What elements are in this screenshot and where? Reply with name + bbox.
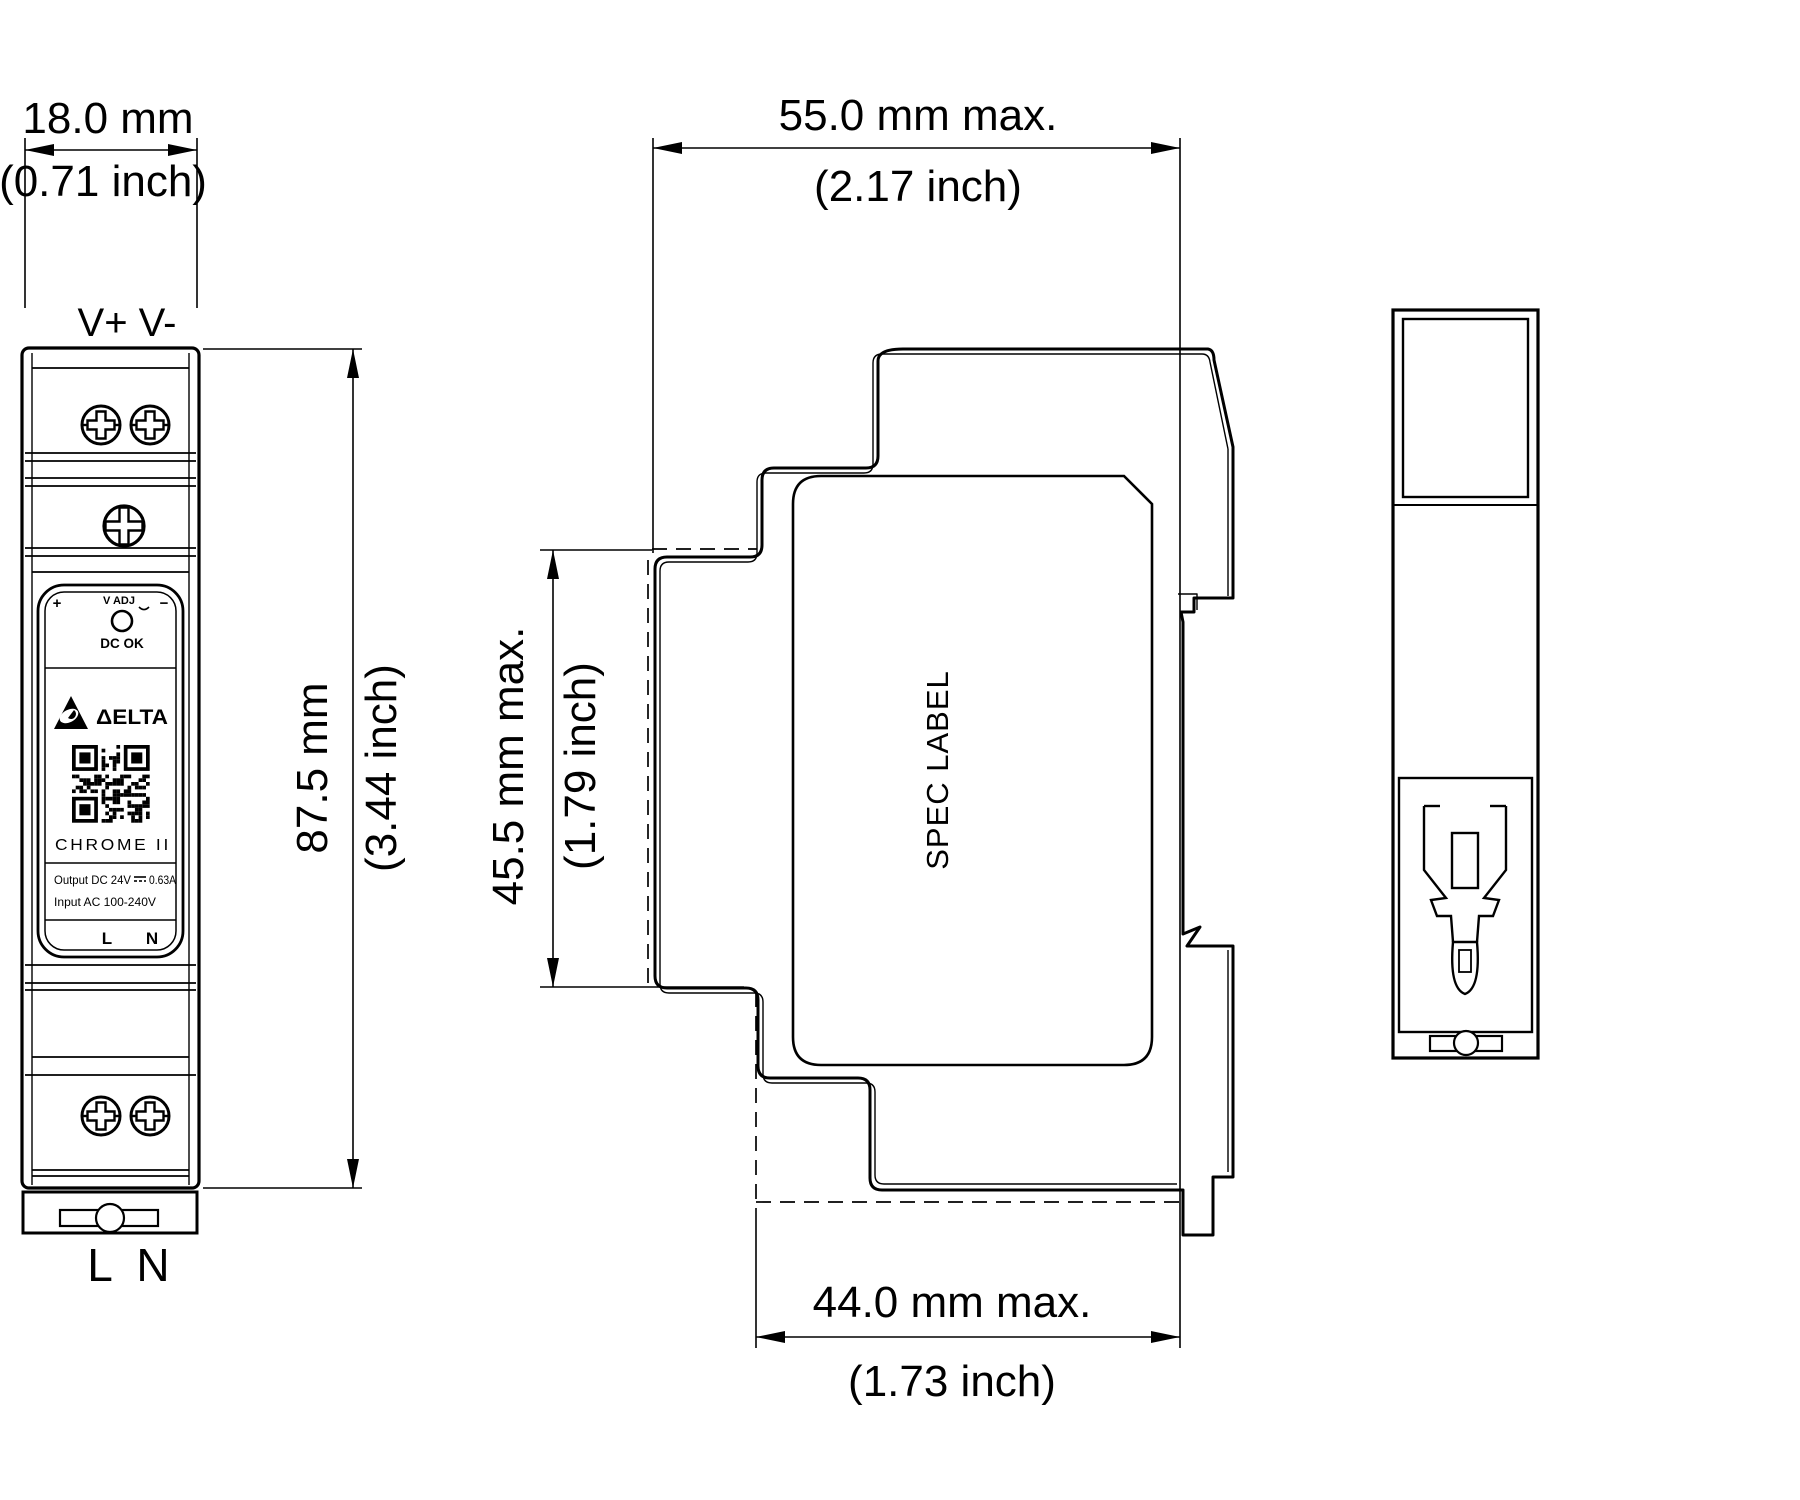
clip-spring-left xyxy=(1424,806,1453,942)
v-adj-arrow-icon xyxy=(139,607,149,610)
front-section-lines xyxy=(25,368,196,1176)
product-label-panel: + V ADJ − DC OK ΔELTA CHROME II Output D… xyxy=(38,585,183,957)
model-text: CHROME II xyxy=(55,837,171,854)
arrowhead-down-icon xyxy=(347,1159,359,1188)
plus-marking: + xyxy=(53,595,62,612)
rear-din-clip xyxy=(1399,778,1532,1032)
dc-symbol-icon xyxy=(134,877,146,881)
brand-text: ΔELTA xyxy=(96,706,168,729)
arrowhead-down-icon xyxy=(547,958,559,987)
front-view: 18.0 mm (0.71 inch) V+ V- + V ADJ − DC O… xyxy=(0,94,406,1291)
dim-44mm-label: 44.0 mm max. xyxy=(813,1278,1092,1327)
rear-body-outline xyxy=(1393,310,1538,1058)
clip-tip-slot xyxy=(1459,950,1471,972)
spec-label-plate xyxy=(793,476,1152,1065)
front-body-outline xyxy=(22,348,199,1188)
rear-top-block xyxy=(1403,319,1528,497)
dimension-depth-55mm xyxy=(653,138,1180,1348)
minus-marking: − xyxy=(160,595,169,612)
output-terminal-marking: V+ V- xyxy=(78,301,177,345)
rear-latch-slider xyxy=(1430,1031,1502,1055)
dim-44mm-inch-label: (1.73 inch) xyxy=(848,1357,1056,1406)
latch-slider-circle xyxy=(96,1204,124,1232)
dim-18mm-label: 18.0 mm xyxy=(22,94,193,143)
clip-slot xyxy=(1452,833,1478,888)
arrowhead-left-icon xyxy=(756,1331,785,1343)
side-view: 55.0 mm max. (2.17 inch) SPEC LABEL 45.5… xyxy=(484,91,1233,1406)
arrowhead-up-icon xyxy=(347,349,359,378)
clip-spring-right xyxy=(1477,806,1506,942)
dc-ok-led-icon xyxy=(112,611,132,631)
dimension-drawing-page: 18.0 mm (0.71 inch) V+ V- + V ADJ − DC O… xyxy=(0,0,1800,1500)
label-l-marking: L xyxy=(102,929,112,948)
label-n-marking: N xyxy=(146,929,158,948)
dim-87mm-inch-label: (3.44 inch) xyxy=(357,664,406,872)
dim-45mm-inch-label: (1.79 inch) xyxy=(556,662,605,870)
input-n-marking: N xyxy=(136,1239,169,1291)
output-current-text: 0.63A xyxy=(149,873,176,887)
delta-logo-icon xyxy=(54,696,88,729)
spec-label-text: SPEC LABEL xyxy=(920,670,955,870)
front-din-latch xyxy=(23,1192,197,1233)
construction-lines xyxy=(648,549,1180,1203)
arrowhead-right-icon xyxy=(1151,142,1180,154)
arrowhead-left-icon xyxy=(25,144,54,156)
dimension-height-87mm xyxy=(203,349,362,1188)
dim-18mm-inch-label: (0.71 inch) xyxy=(0,157,207,206)
v-adj-marking: V ADJ xyxy=(103,595,135,607)
dim-55mm-inch-label: (2.17 inch) xyxy=(814,162,1022,211)
input-rating-text: Input AC 100-240V xyxy=(54,895,156,909)
arrowhead-right-icon xyxy=(1151,1331,1180,1343)
dim-87mm-label: 87.5 mm xyxy=(288,682,337,853)
qr-code xyxy=(72,745,150,823)
arrowhead-up-icon xyxy=(547,550,559,579)
arrowhead-left-icon xyxy=(653,142,682,154)
dim-45mm-label: 45.5 mm max. xyxy=(484,627,533,906)
dc-ok-marking: DC OK xyxy=(100,636,144,651)
mechanical-drawing: 18.0 mm (0.71 inch) V+ V- + V ADJ − DC O… xyxy=(0,0,1800,1500)
output-rating-text: Output DC 24V xyxy=(54,873,131,887)
arrowhead-right-icon xyxy=(168,144,197,156)
dim-55mm-label: 55.0 mm max. xyxy=(779,91,1058,140)
rear-view xyxy=(1393,310,1538,1058)
input-l-marking: L xyxy=(87,1239,113,1291)
